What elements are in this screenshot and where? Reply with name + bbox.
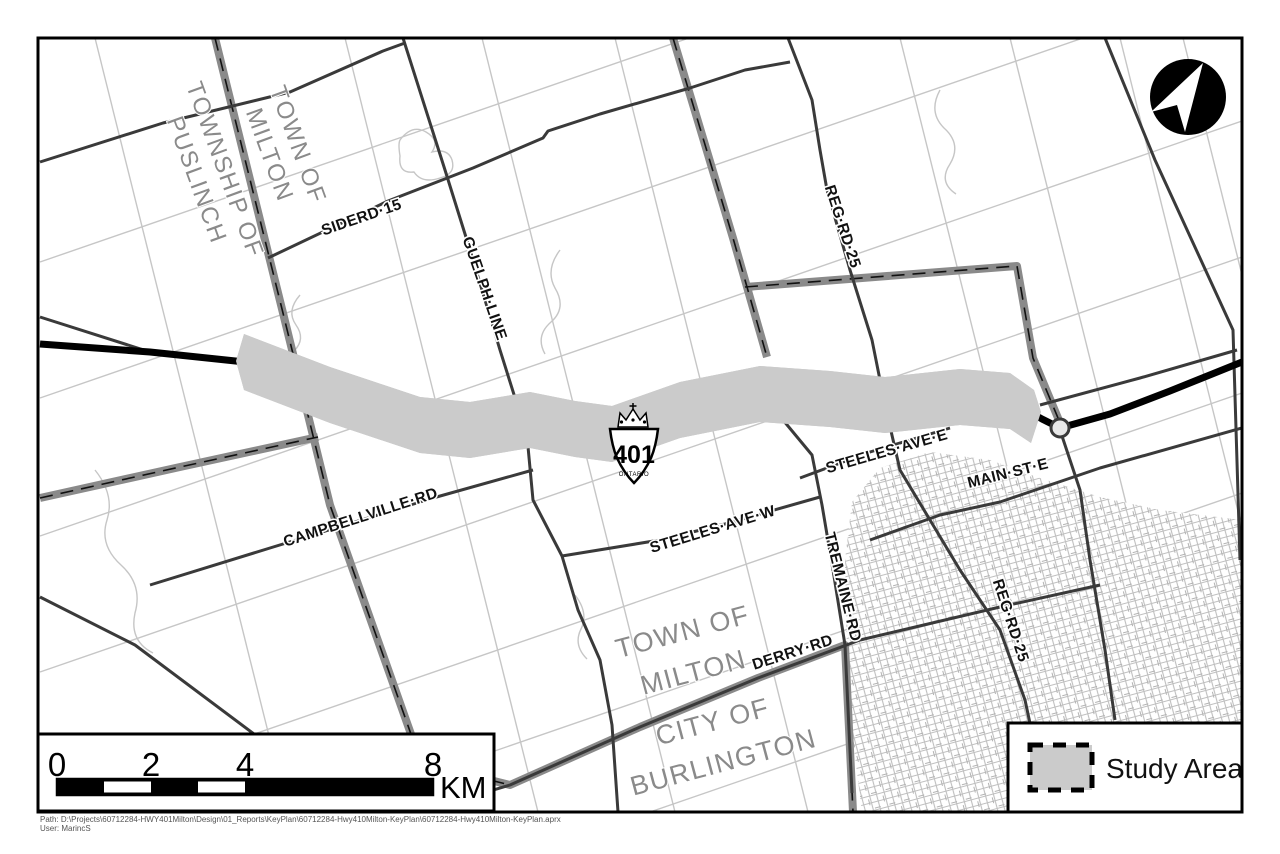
shield-route-number: 401 <box>613 441 655 469</box>
scale-tick-2: 2 <box>142 746 160 783</box>
scale-tick-0: 0 <box>48 746 66 783</box>
legend-study-area-swatch <box>1030 745 1092 790</box>
map-canvas: TOWNSHIP OF PUSLINCH TOWN OF MILTON TOWN… <box>0 0 1280 854</box>
legend-study-area-label: Study Area <box>1106 753 1243 784</box>
scale-bar-segments <box>57 779 433 795</box>
footer-path-line: Path: D:\Projects\60712284-HWY401Milton\… <box>40 815 561 824</box>
shield-province: ONTARIO <box>619 472 649 478</box>
scale-bar: 0 2 4 8 KM <box>38 734 494 811</box>
footer-user-line: User: MarincS <box>40 824 561 833</box>
north-arrow-icon <box>1150 59 1226 135</box>
legend: Study Area <box>1008 723 1243 812</box>
scale-tick-4: 4 <box>236 746 254 783</box>
scale-unit: KM <box>440 770 487 805</box>
map-page: TOWNSHIP OF PUSLINCH TOWN OF MILTON TOWN… <box>0 0 1280 854</box>
footer-metadata: Path: D:\Projects\60712284-HWY401Milton\… <box>40 815 561 833</box>
